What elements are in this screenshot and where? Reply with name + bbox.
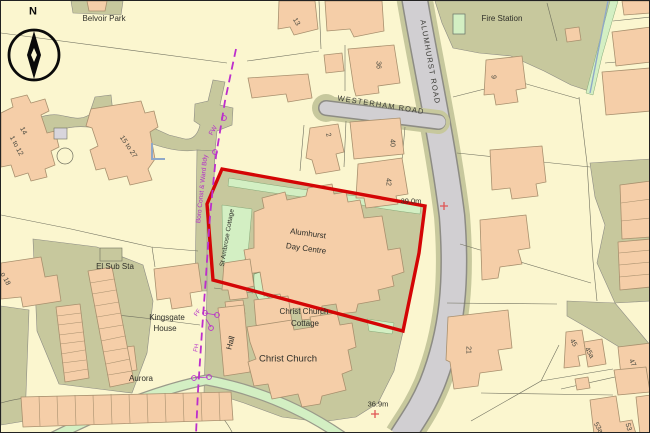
building-house-45 xyxy=(564,330,586,368)
tree xyxy=(57,148,73,164)
building-house-40 xyxy=(350,118,404,159)
glasshouse xyxy=(54,128,67,139)
building-house-2 xyxy=(306,124,344,174)
building-north-low xyxy=(248,74,312,102)
building-tr-1 xyxy=(622,1,650,15)
garage-row-east-1 xyxy=(620,181,650,239)
building-se xyxy=(614,367,650,395)
building-below-9 xyxy=(490,146,546,199)
building-flats-1-14 xyxy=(1,95,59,181)
building-kingsgate xyxy=(154,263,202,309)
map-canvas: N Belvoir Park Fire Station WESTERHAM RO… xyxy=(0,0,650,433)
building-tr-2 xyxy=(612,27,650,66)
map-drawing xyxy=(1,1,650,433)
building-east-mid xyxy=(480,215,530,280)
building-topleft-partial xyxy=(87,1,107,11)
building-north-large xyxy=(325,1,384,37)
building-house-9 xyxy=(484,56,526,105)
building-house-45a xyxy=(584,339,606,367)
fire-station-tank xyxy=(453,14,465,34)
building-hall xyxy=(218,305,250,376)
building-house-21 xyxy=(446,310,512,389)
building-house-13 xyxy=(278,1,318,35)
building-tr-small xyxy=(565,27,581,42)
building-annex-45 xyxy=(575,377,590,390)
building-53a xyxy=(590,396,636,433)
building-house-36 xyxy=(348,45,400,96)
building-flats-15-27 xyxy=(86,101,158,185)
building-tr-3 xyxy=(602,68,650,115)
building-53 xyxy=(636,395,650,433)
building-north-square xyxy=(324,53,344,73)
compass-rose xyxy=(9,30,59,80)
